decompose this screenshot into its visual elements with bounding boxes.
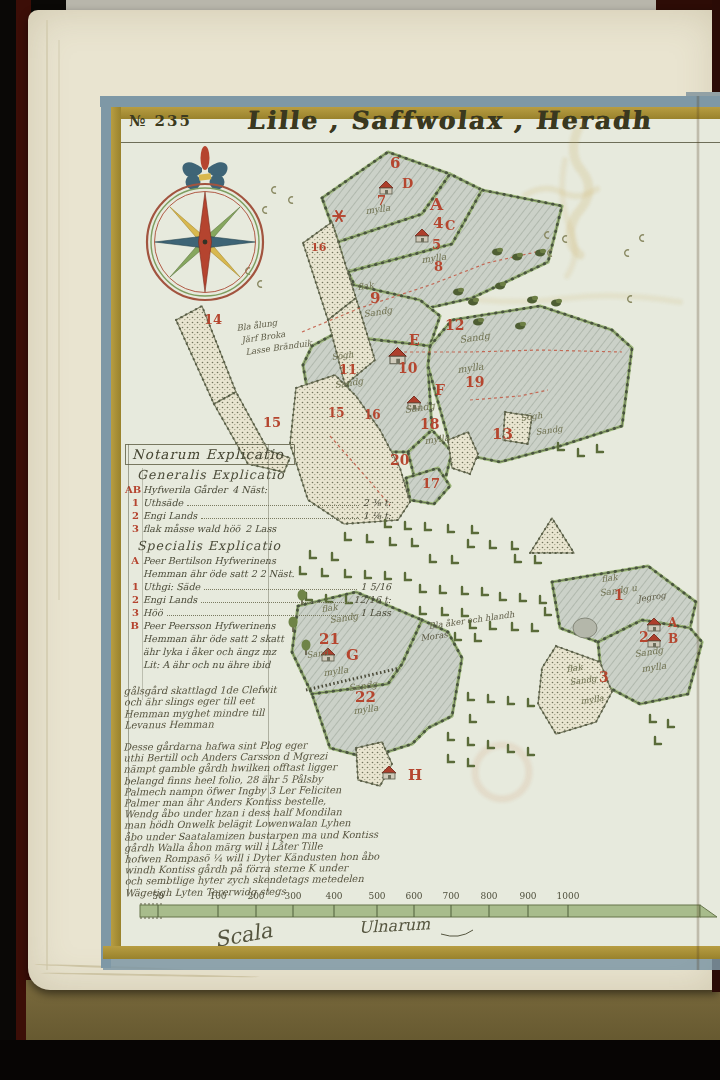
legend-row-value: 12/16 t: [354,594,391,605]
legend-row: Hemman ähr öde satt 2 skatt [125,633,391,646]
parcel-label: 18 [420,416,439,432]
grass-tuft-icon [468,738,474,745]
bird-mark-icon [289,197,293,203]
parcel-label: A [667,616,678,630]
parcel-label: 9 [370,289,380,307]
grass-tuft-icon [470,715,476,722]
page-deckle-edge [58,40,60,600]
legend-row-text: ähr lyka i åker och ängz mz [125,646,276,657]
parcel-label: 16 [311,241,327,254]
legend-row: 2Engi Lands12/16 t: [125,594,391,607]
grass-tuft-icon [475,634,481,641]
parcel-label: 15 [263,415,281,430]
grass-tuft-icon [405,522,411,529]
legend-row-text: Hyfwerila Gårder [143,484,227,495]
scale-caption: Ulnarum [358,914,431,937]
parcel-label: 15 [328,406,345,420]
legend-row-value: 2 Lass [245,523,276,534]
legend-section-heading: Generalis Explicatio [125,467,391,484]
parcel-label: 4 [433,214,443,232]
parcel-label: 1 [614,587,624,603]
legend-row: 1Uthgi: Säde1 5/16 [125,581,391,594]
grass-tuft-icon [425,523,431,530]
grey-bush-icon [573,618,597,638]
legend-row-text: Uthgi: Säde [143,581,200,592]
grass-tuft-icon [430,555,436,562]
folio-number: № 235 [129,112,192,130]
grass-tuft-icon [508,697,514,704]
grass-tuft-icon [448,525,454,532]
legend-row-value: 1 Lass [360,607,391,618]
parcel-label: 14 [204,312,222,327]
flourish [441,930,473,936]
scale-tick-label: 1000 [557,891,580,901]
grass-tuft-icon [520,594,526,601]
legend-row: Lit: A ähr och nu ähre ibid [125,659,391,672]
legend-row-text: Uthsäde [143,497,183,508]
bush-icon [497,248,503,252]
bird-mark-icon [628,296,632,302]
bush-icon [473,298,479,302]
parcel-label: B [668,632,678,646]
legend-row-text: Hemman ähr öde satt 2 2 Näst. [125,568,295,579]
legend-row: BPeer Peersson Hyfwerinens [125,620,391,633]
legend-row-text: Lit: A ähr och nu ähre ibid [125,659,270,670]
grass-tuft-icon [405,573,411,580]
bush-icon [517,253,523,257]
parcel-label: F [435,382,445,398]
bird-mark-icon [563,236,567,242]
scale-caption: Scala [213,918,275,946]
legend-row: 3flak måsse wald höö2 Lass [125,523,391,536]
dotted-leader [187,505,359,506]
legend-row-text: Peer Bertilson Hyfwerinens [143,555,276,566]
manuscript-photo: № 235 Lille , Saffwolax , Heradh [0,0,720,1080]
bush-icon [520,322,526,326]
parcel-label: 16 [364,408,381,422]
bush-icon [532,296,538,300]
dotted-leader [201,602,349,603]
grass-tuft-icon [512,542,518,549]
grass-tuft-icon [448,733,454,740]
parcel-label: 6 [390,154,400,172]
dotted-leader [201,518,358,519]
legend-row: ähr lyka i åker och ängz mz [125,646,391,659]
legend-row-text: Engi Lands [143,510,197,521]
bush-icon [500,282,506,286]
grass-tuft-icon [452,556,458,563]
legend-row: ABHyfwerila Gårder4 Näst: [125,484,391,497]
parcel-label: 11 [339,362,357,377]
grass-tuft-icon [412,539,418,546]
parcel-label: H [408,766,422,784]
legend-rule [142,468,143,700]
legend-row-text: Engi Lands [143,594,197,605]
bush-icon [556,299,562,303]
grass-tuft-icon [442,608,448,615]
parcel-label: 10 [398,360,418,376]
legend-row-value: 1 ⅛ t: [363,510,391,521]
photo-background-bottom [0,1040,720,1080]
scale-tick-label: 700 [442,891,459,901]
map-frame [103,959,720,970]
grass-tuft-icon [468,759,474,766]
grass-tuft-icon [490,622,496,629]
parcel-label: C [445,218,455,233]
parcel-label: 2 [639,629,649,645]
grass-tuft-icon [528,748,534,755]
legend-row: 2Engi Lands1 ⅛ t: [125,510,391,523]
compass-rose-icon [140,132,270,310]
parcel-label: A [429,194,444,214]
bird-mark-icon [272,187,276,193]
grass-tuft-icon [532,624,538,631]
grass-tuft-icon [455,633,461,640]
legend-row-value: 2 ⅜ t: [363,497,391,508]
grass-tuft-icon [515,555,521,562]
scale-tick-label: 900 [519,891,536,901]
descriptive-paragraph: Desse gårdarna hafwa sint Plog egeruthi … [123,739,401,899]
parcel-label: 20 [390,452,410,468]
parcel-label: 5 [432,237,441,252]
page-deckle-edge [46,20,48,970]
parcel-label: D [402,176,413,191]
legend-title: Notarum Explicatio [125,444,295,465]
grass-tuft-icon [488,695,494,702]
grass-tuft-icon [528,699,534,706]
dotted-leader [204,589,356,590]
grass-tuft-icon [468,693,474,700]
parcel-label: 12 [445,317,464,333]
grass-tuft-icon [512,623,518,630]
parcel-label: 8 [434,259,443,274]
bird-mark-icon [640,235,644,241]
folio-mark: № [129,112,147,130]
grass-tuft-icon [440,586,446,593]
scale-tick-label: 600 [405,891,422,901]
parcel-label: E [409,332,420,348]
legend-row-text: Höö [143,607,163,618]
bush-icon [540,249,546,253]
grass-tuft-icon [490,541,496,548]
scale-tick-label: 800 [480,891,497,901]
map-frame [103,946,720,959]
grass-tuft-icon [508,745,514,752]
grass-tuft-icon [650,715,656,722]
parcel-label: 17 [422,476,440,491]
grass-tuft-icon [597,445,603,452]
grass-tuft-icon [500,593,506,600]
legend-row: Hemman ähr öde satt 2 2 Näst. [125,568,391,581]
grass-tuft-icon [472,526,478,533]
grass-tuft-icon [448,755,454,762]
grass-tuft-icon [655,737,661,744]
grass-tuft-icon [545,608,551,615]
parcel-label: 13 [492,425,513,443]
legend-row-text: flak måsse wald höö [143,523,240,534]
map-frame [111,107,121,958]
legend-row-value: 4 Näst: [232,484,267,495]
parcel-label: 19 [465,374,484,390]
grass-tuft-icon [578,449,584,456]
grass-tuft-icon [482,588,488,595]
legend-row: APeer Bertilson Hyfwerinens [125,555,391,568]
legend-row-text: Peer Peersson Hyfwerinens [143,620,275,631]
grass-tuft-icon [420,585,426,592]
bush-icon [478,318,484,322]
legend-section-heading: Specialis Explicatio [125,538,391,555]
grass-tuft-icon [488,741,494,748]
grass-tuft-icon [420,607,426,614]
grass-tuft-icon [468,540,474,547]
legend-row-text: Hemman ähr öde satt 2 skatt [125,633,284,644]
dotted-leader [167,615,356,616]
legend: Notarum Explicatio Generalis ExplicatioA… [125,444,391,672]
marginal-note: gålsgård skattlagd 1de Clefwitoch ähr sl… [124,683,400,732]
grass-tuft-icon [535,556,541,563]
map-frame [101,96,111,968]
parcel-label: 3 [599,669,609,685]
bush-icon [458,288,464,292]
legend-row: 3Höö1 Lass [125,607,391,620]
legend-row: 1Uthsäde2 ⅜ t: [125,497,391,510]
grass-tuft-icon [540,596,546,603]
page-fold-line [696,96,700,970]
scale-bar-end [700,905,717,917]
bird-mark-icon [625,250,629,256]
gravel-parcel [530,518,574,553]
grass-tuft-icon [462,587,468,594]
grass-tuft-icon [668,720,674,727]
folio-number-text: 235 [155,112,192,130]
legend-row-value: 1 5/16 [361,581,391,592]
